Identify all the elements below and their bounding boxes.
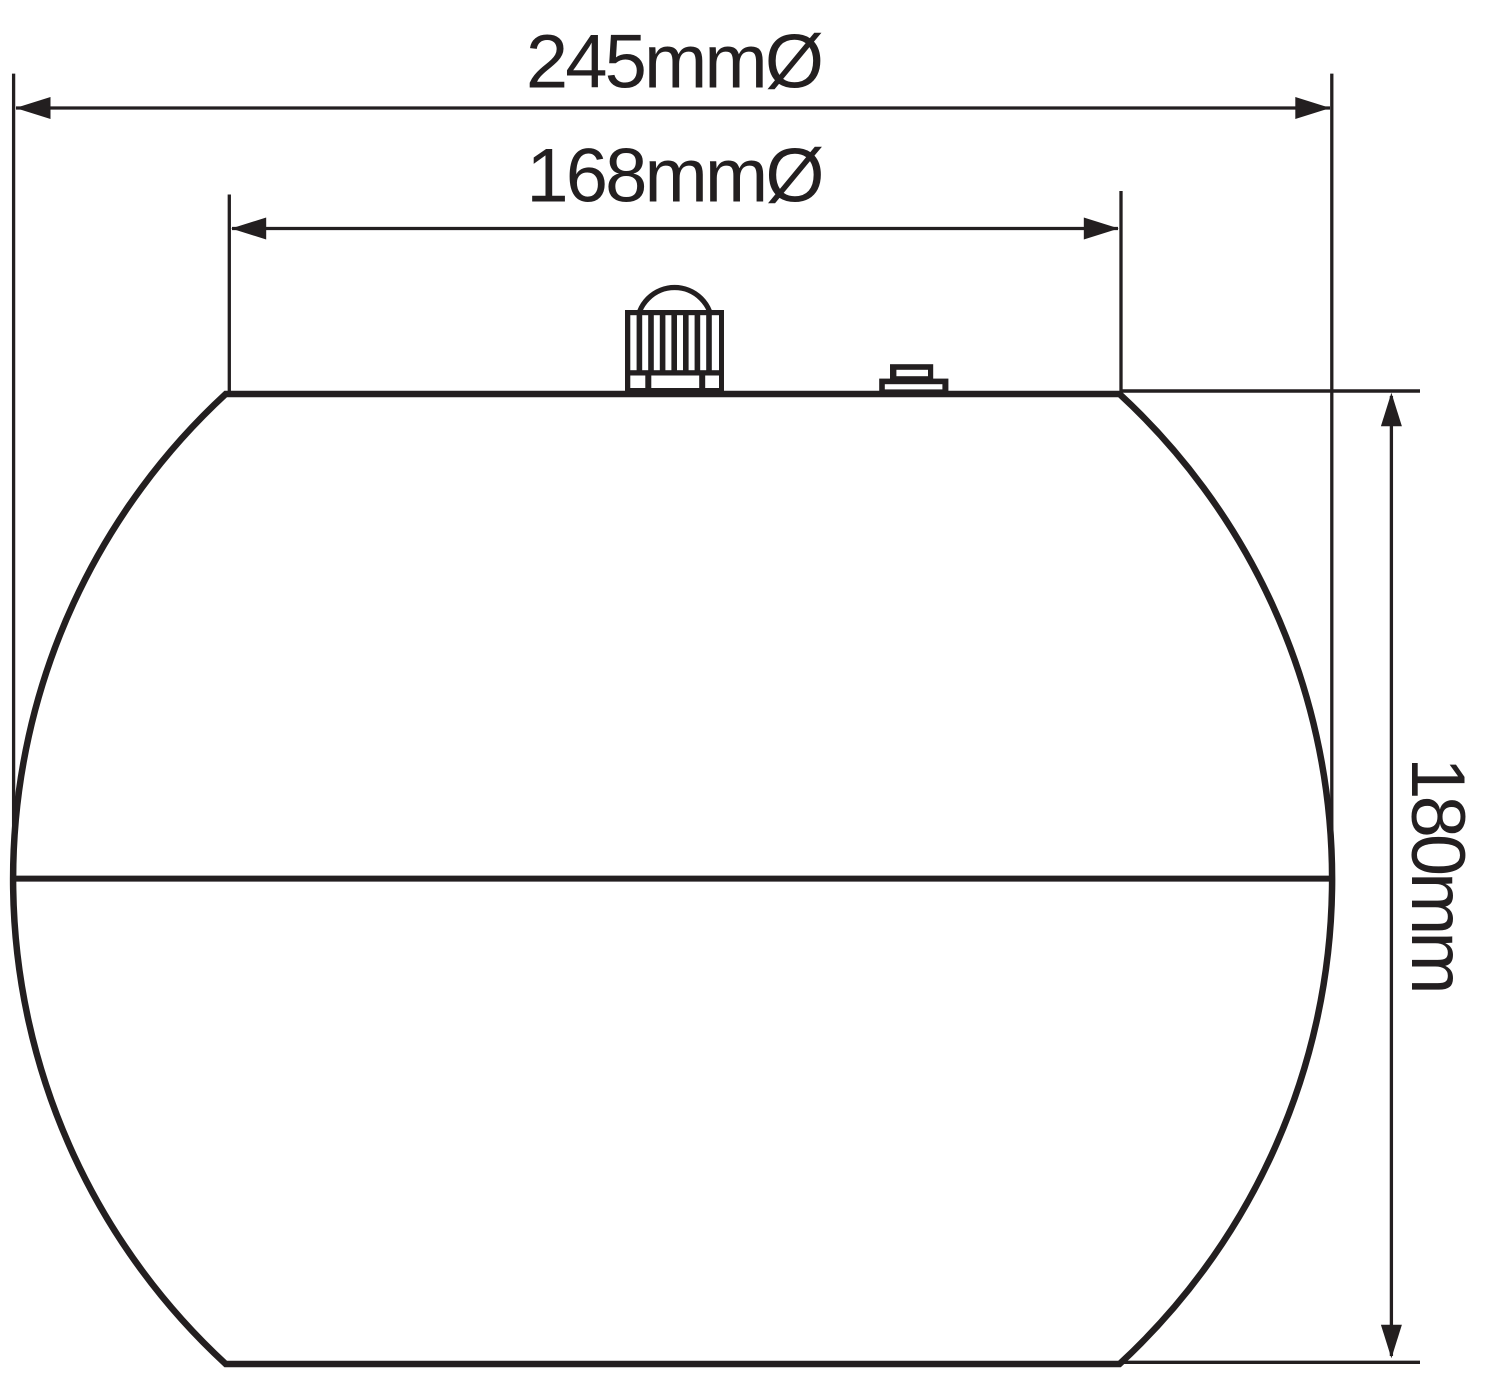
svg-text:168mmØ: 168mmØ [526, 134, 822, 219]
svg-text:180mm: 180mm [1395, 757, 1480, 990]
svg-text:245mmØ: 245mmØ [526, 20, 822, 105]
